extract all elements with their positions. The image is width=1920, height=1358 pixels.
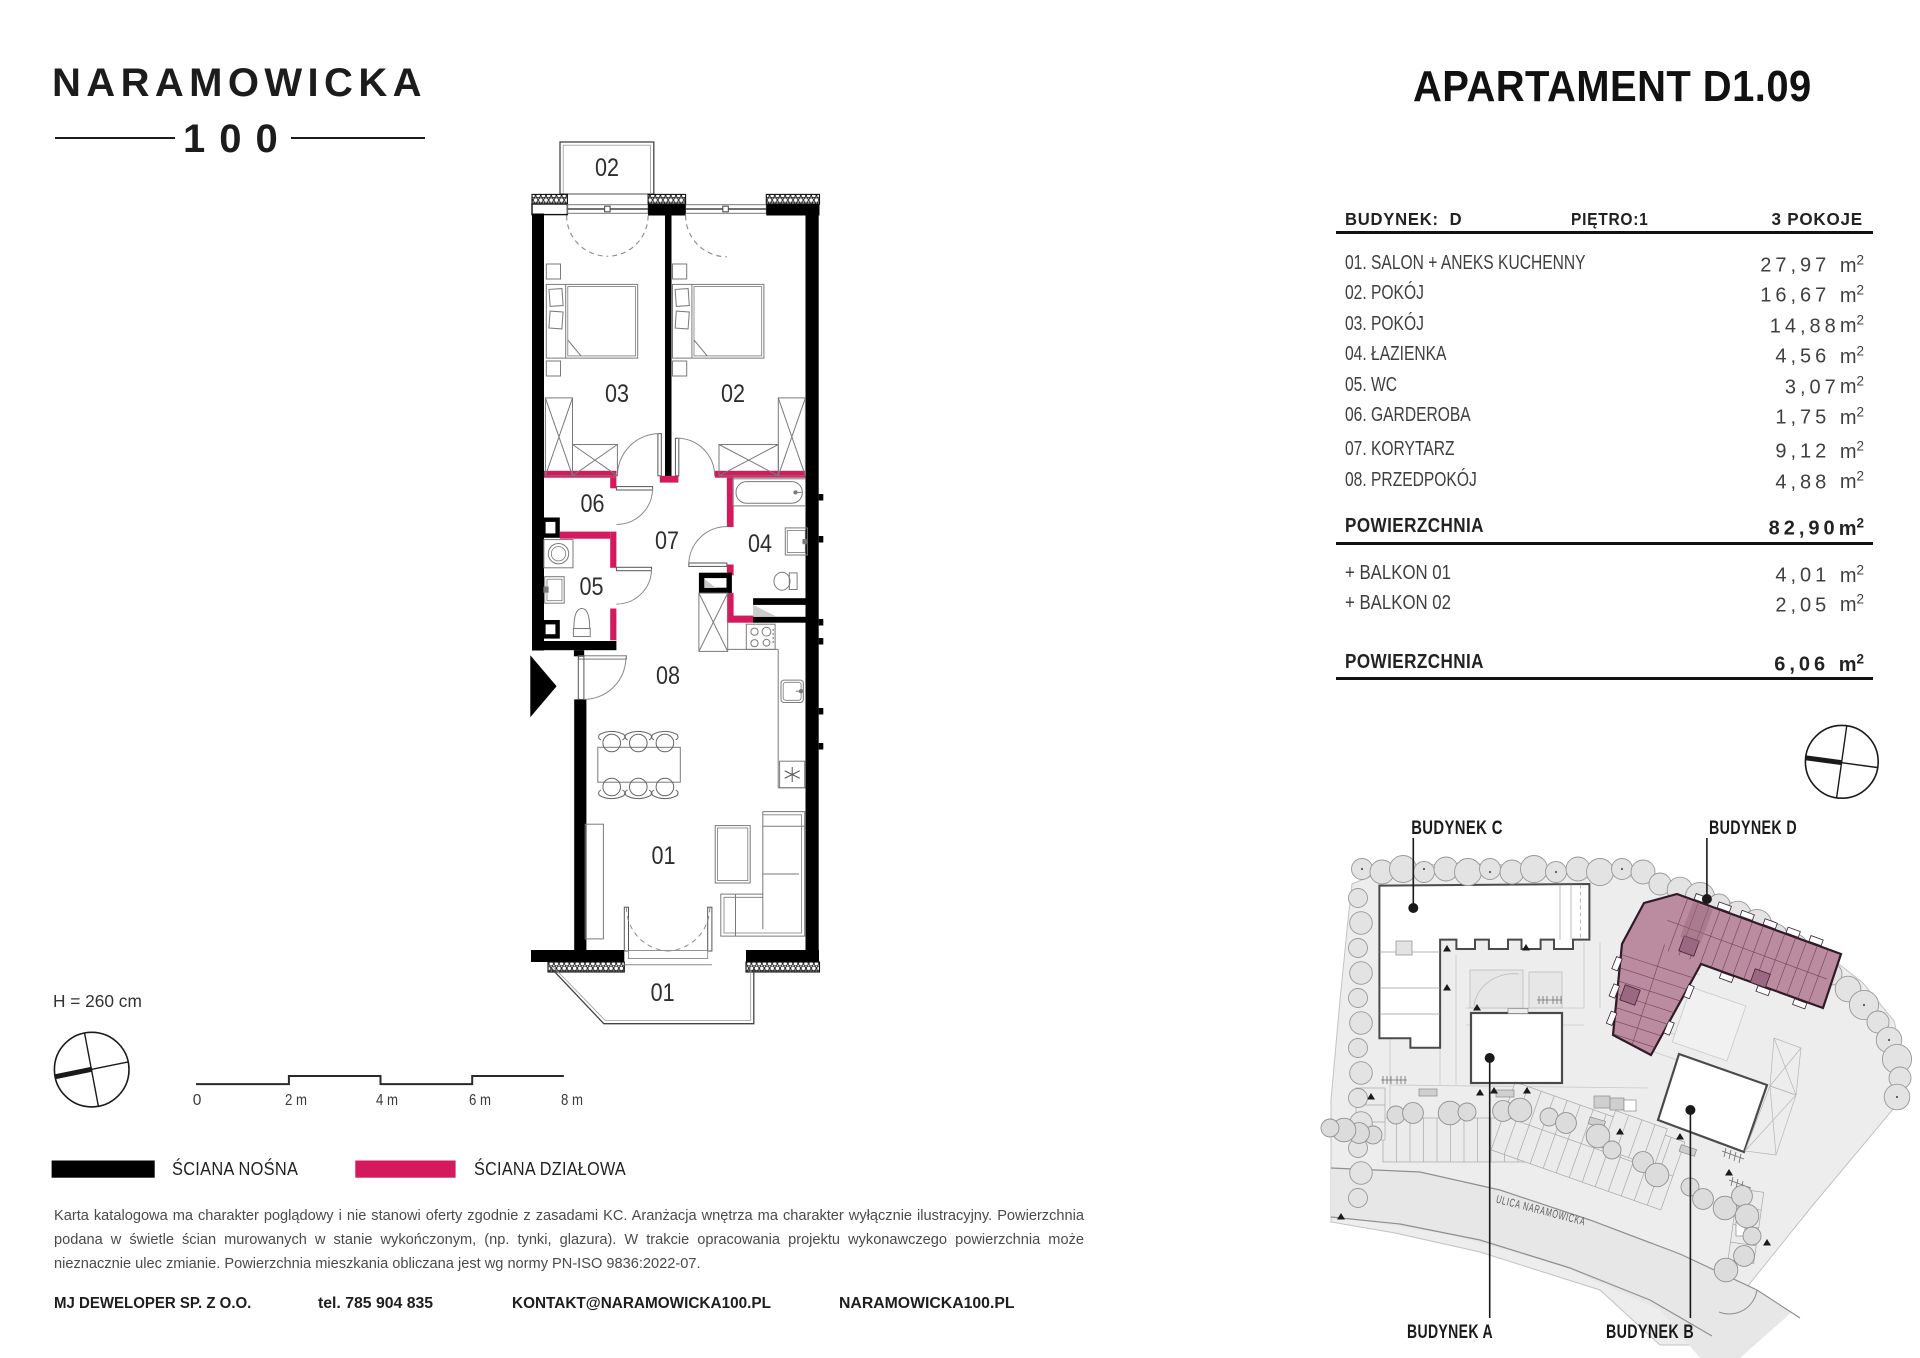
svg-text:BUDYNEK A: BUDYNEK A [1407,1321,1493,1343]
svg-text:03: 03 [605,380,629,408]
svg-text:BUDYNEK B: BUDYNEK B [1606,1321,1694,1343]
svg-text:06: 06 [581,490,605,518]
svg-text:04: 04 [748,530,772,558]
svg-text:02: 02 [721,380,745,408]
svg-text:BUDYNEK D: BUDYNEK D [1709,817,1797,839]
svg-text:08: 08 [656,662,680,690]
svg-text:01: 01 [652,842,676,870]
svg-text:07: 07 [655,527,679,555]
svg-text:2 m: 2 m [285,1092,307,1109]
svg-text:02: 02 [595,154,619,182]
svg-text:8 m: 8 m [561,1092,583,1109]
svg-text:0: 0 [193,1092,202,1109]
svg-text:01: 01 [651,979,675,1007]
svg-text:BUDYNEK C: BUDYNEK C [1411,817,1503,839]
svg-text:4 m: 4 m [376,1092,398,1109]
svg-text:6 m: 6 m [469,1092,491,1109]
svg-text:05: 05 [580,573,604,601]
